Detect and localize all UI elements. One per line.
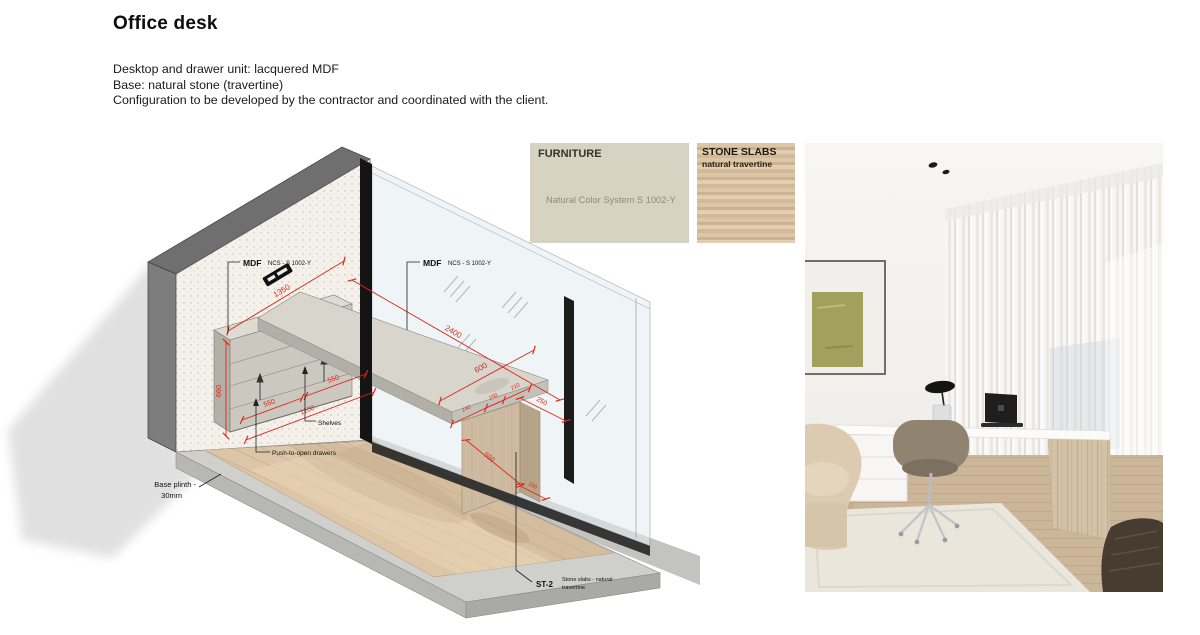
reference-photo (805, 143, 1163, 592)
dim-unit-height: 660 (214, 385, 223, 398)
framed-artwork (805, 261, 885, 374)
furniture-material-swatch: FURNITURE Natural Color System S 1002-Y (530, 143, 689, 243)
base-plinth-label-line2: 30mm (161, 491, 182, 500)
stone-desc-line2: travertine (562, 585, 585, 591)
shelves-label: Shelves (318, 420, 342, 427)
stone-swatch-heading: STONE SLABS (702, 147, 776, 158)
travertine-pedestal-photo (1048, 436, 1110, 540)
mdf-spec-left: NCS - S 1002-Y (268, 261, 311, 267)
stone-tag-label: ST-2 (536, 580, 553, 589)
mdf-spec-right: NCS - S 1002-Y (448, 261, 491, 267)
stone-desc-line1: Stone slabs - natural (562, 577, 612, 583)
laptop-icon (981, 393, 1023, 427)
specification-sheet: Office desk Desktop and drawer unit: lac… (0, 0, 1200, 635)
stone-material-swatch: STONE SLABS natural travertine (697, 143, 795, 243)
axonometric-drawing: 1350 2400 600 250 240 150 210 660 550 55… (0, 0, 800, 635)
wall-corner-post (360, 158, 372, 444)
dark-throw-chair (1101, 518, 1163, 592)
glass-mullion (564, 296, 574, 484)
mdf-label-right: MDF (423, 258, 441, 268)
base-plinth-label-line1: Base plinth - (154, 480, 196, 489)
furniture-swatch-heading: FURNITURE (538, 148, 602, 160)
push-drawers-label: Push-to-open drawers (272, 450, 337, 457)
mdf-label-left: MDF (243, 258, 261, 268)
stone-swatch-subheading: natural travertine (702, 159, 772, 169)
furniture-swatch-note: Natural Color System S 1002-Y (546, 195, 676, 205)
